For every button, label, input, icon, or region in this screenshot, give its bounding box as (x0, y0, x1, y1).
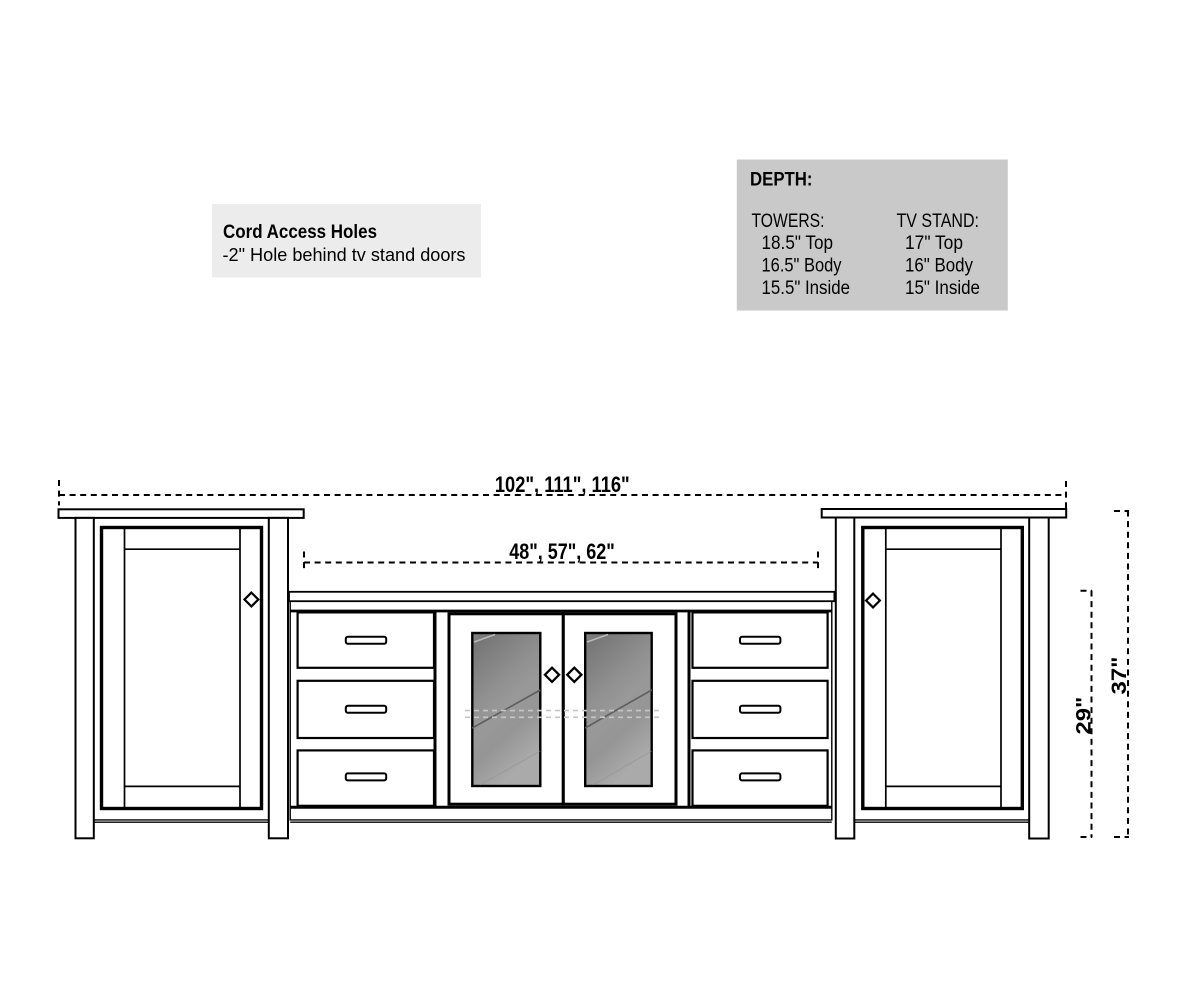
svg-text:15.5" Inside: 15.5" Inside (762, 278, 851, 299)
svg-text:29": 29" (1072, 697, 1096, 735)
svg-text:16" Body: 16" Body (905, 256, 973, 277)
svg-text:37": 37" (1107, 657, 1131, 695)
svg-text:48", 57", 62": 48", 57", 62" (509, 539, 615, 564)
svg-text:Cord Access Holes: Cord Access Holes (223, 221, 377, 243)
svg-text:17" Top: 17" Top (905, 233, 963, 254)
svg-text:TOWERS:: TOWERS: (752, 211, 825, 232)
svg-text:-2" Hole behind tv stand doors: -2" Hole behind tv stand doors (223, 244, 466, 265)
svg-text:16.5" Body: 16.5" Body (762, 256, 842, 277)
svg-text:TV STAND:: TV STAND: (897, 211, 980, 232)
svg-text:18.5" Top: 18.5" Top (762, 233, 834, 254)
svg-text:DEPTH:: DEPTH: (750, 168, 813, 190)
svg-text:15" Inside: 15" Inside (905, 278, 980, 299)
svg-text:102", 111", 116": 102", 111", 116" (495, 472, 630, 497)
